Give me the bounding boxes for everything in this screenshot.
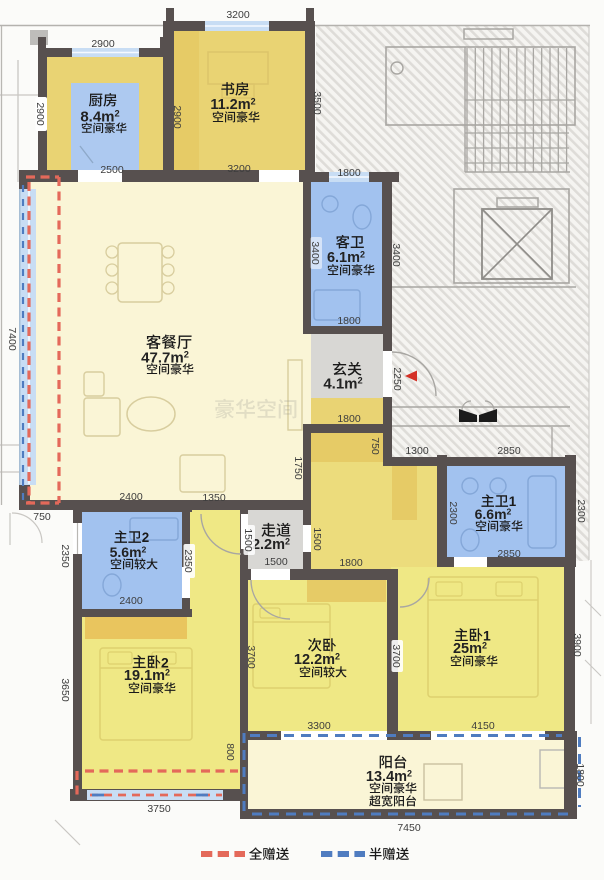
svg-text:3700: 3700 xyxy=(245,645,257,669)
svg-text:25m2: 25m2 xyxy=(453,641,487,658)
svg-text:2400: 2400 xyxy=(119,491,143,503)
svg-text:1800: 1800 xyxy=(337,315,361,327)
svg-text:1350: 1350 xyxy=(202,492,226,504)
svg-text:13.4m2: 13.4m2 xyxy=(366,769,412,786)
svg-text:2: 2 xyxy=(142,530,149,545)
svg-text:1500: 1500 xyxy=(264,556,288,568)
svg-text:2350: 2350 xyxy=(59,544,71,568)
svg-text:1800: 1800 xyxy=(337,167,361,179)
svg-text:4.1m2: 4.1m2 xyxy=(323,375,362,392)
svg-text:6.6m2: 6.6m2 xyxy=(475,506,512,522)
svg-text:3200: 3200 xyxy=(227,163,251,175)
svg-text:2850: 2850 xyxy=(497,445,521,457)
svg-text:3400: 3400 xyxy=(390,243,402,267)
svg-text:7450: 7450 xyxy=(397,822,421,834)
svg-text:11.2m2: 11.2m2 xyxy=(210,97,255,114)
svg-text:1750: 1750 xyxy=(292,456,304,480)
svg-text:6.1m2: 6.1m2 xyxy=(327,250,365,267)
svg-text:2400: 2400 xyxy=(119,595,143,607)
svg-text:3650: 3650 xyxy=(59,678,71,702)
svg-text:2500: 2500 xyxy=(100,164,124,176)
svg-text:2350: 2350 xyxy=(182,549,194,573)
svg-text:19.1m2: 19.1m2 xyxy=(124,668,170,685)
svg-text:1800: 1800 xyxy=(339,557,363,569)
svg-text:3700: 3700 xyxy=(390,644,402,668)
svg-text:2900: 2900 xyxy=(91,38,115,50)
svg-text:4150: 4150 xyxy=(471,720,495,732)
svg-text:750: 750 xyxy=(33,511,51,523)
svg-text:1500: 1500 xyxy=(242,528,254,552)
svg-text:2900: 2900 xyxy=(34,102,46,126)
svg-text:12.2m2: 12.2m2 xyxy=(294,652,340,669)
svg-text:7400: 7400 xyxy=(6,327,18,351)
svg-text:2900: 2900 xyxy=(171,105,183,129)
svg-text:3900: 3900 xyxy=(571,633,583,657)
svg-text:2300: 2300 xyxy=(575,499,587,523)
svg-text:2250: 2250 xyxy=(391,367,403,391)
svg-text:1300: 1300 xyxy=(405,445,429,457)
svg-text:3500: 3500 xyxy=(311,91,323,115)
svg-text:1500: 1500 xyxy=(311,527,323,551)
svg-text:1800: 1800 xyxy=(337,413,361,425)
svg-text:2.2m2: 2.2m2 xyxy=(252,537,290,554)
svg-text:3200: 3200 xyxy=(226,9,250,21)
svg-text:3750: 3750 xyxy=(147,803,171,815)
svg-text:5.6m2: 5.6m2 xyxy=(110,544,147,560)
svg-text:47.7m2: 47.7m2 xyxy=(141,349,189,366)
svg-text:3400: 3400 xyxy=(309,241,321,265)
svg-text:3300: 3300 xyxy=(307,720,331,732)
svg-text:800: 800 xyxy=(224,743,236,761)
svg-text:2850: 2850 xyxy=(497,548,521,560)
svg-text:2300: 2300 xyxy=(447,501,459,525)
svg-text:1800: 1800 xyxy=(574,763,586,787)
svg-text:750: 750 xyxy=(369,437,381,455)
